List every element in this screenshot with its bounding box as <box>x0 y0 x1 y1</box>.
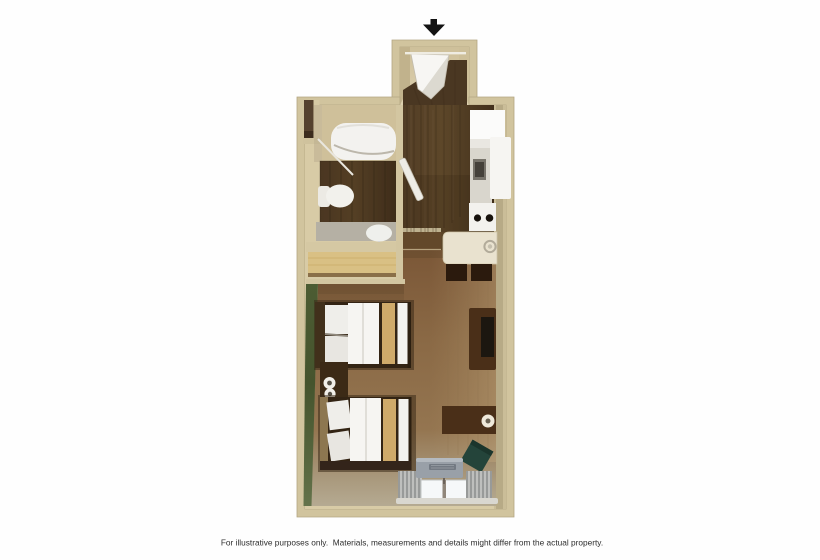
svg-text:For illustrative purposes only: For illustrative purposes only. Material… <box>221 538 603 548</box>
